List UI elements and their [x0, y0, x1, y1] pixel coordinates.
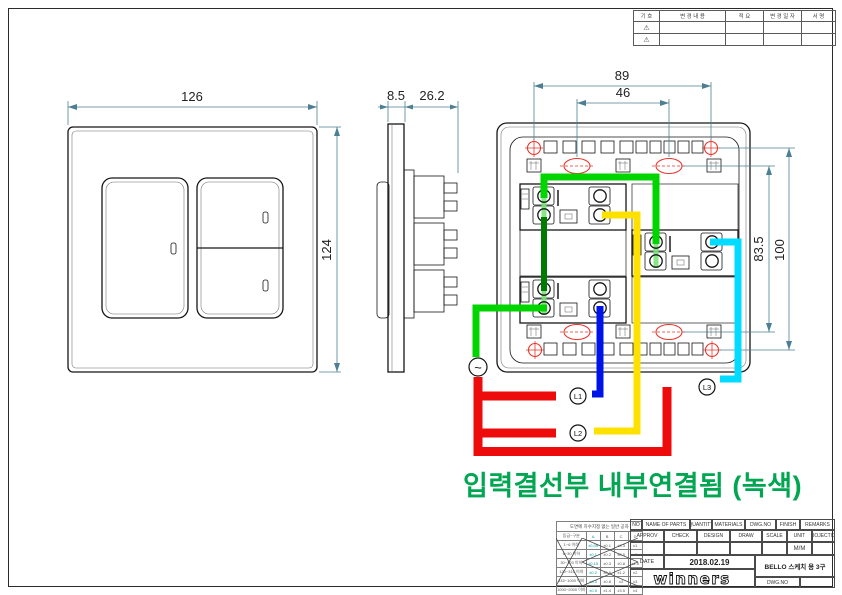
revision-mark-icon: ⚠ [634, 22, 660, 34]
svg-text:~: ~ [474, 360, 482, 375]
switch-module-1 [520, 184, 626, 230]
rocker-left [102, 178, 188, 318]
tb-h1: DWG.NO [745, 519, 776, 530]
tb-cell [762, 542, 787, 555]
front-view: 126 124 [68, 89, 341, 372]
wire-blue-l1 [592, 306, 600, 394]
winners-logo: winners [630, 569, 755, 588]
dwg-no-value [800, 577, 835, 588]
svg-text:100: 100 [772, 239, 787, 261]
rev-cell [660, 34, 726, 46]
rev-cell [802, 34, 836, 46]
svg-text:124: 124 [319, 239, 334, 261]
tb-h2: DRAW [730, 530, 762, 542]
tb-cell [664, 542, 697, 555]
winners-logo-text: winners [653, 570, 730, 588]
side-view: 8.5 26.2 [377, 88, 458, 372]
rocker-indicator-slot [171, 243, 176, 254]
tb-h1: REMARKS [800, 519, 835, 530]
tb-h2: CHECK [664, 530, 697, 542]
wire-cyan-l3 [710, 242, 738, 379]
empty-bay [632, 277, 738, 323]
date-label: DATE [630, 555, 664, 569]
rev-header: 기 호 [634, 11, 660, 22]
date-value: 2018.02.19 [664, 555, 755, 569]
revision-mark-icon: ⚠ [634, 34, 660, 46]
tb-h2: DESIGN [697, 530, 730, 542]
tb-h1: NAME OF PARTS [642, 519, 690, 530]
dim-side: 8.5 26.2 [378, 88, 458, 173]
tb-h2: PROJECTION [812, 530, 835, 542]
empty-bay [632, 184, 738, 230]
svg-text:126: 126 [181, 89, 203, 104]
rev-header: 서 명 [802, 11, 836, 22]
rev-header: 변 경 일 자 [764, 11, 802, 22]
tolerance-crossout [556, 538, 638, 586]
svg-text:89: 89 [615, 68, 629, 83]
svg-text:46: 46 [616, 85, 630, 100]
tb-h1: MATERIALS [712, 519, 745, 530]
tb-h2: APPROV [630, 530, 664, 542]
dwg-no-label: DWG.NO [755, 577, 800, 588]
title-block: NO NAME OF PARTS QUANTITY MATERIALS DWG.… [630, 519, 835, 588]
rev-header: 변 경 내 용 [660, 11, 726, 22]
tb-cell [812, 542, 835, 555]
switch-module-3 [520, 277, 626, 323]
svg-text:83.5: 83.5 [751, 236, 766, 261]
technical-drawing: 126 124 [0, 0, 842, 595]
drawing-sheet: { "colors": { "wire-green": "#00d500", "… [0, 0, 842, 595]
rocker-indicator-slot [263, 280, 268, 291]
product-name: BELLO 스케치 용 3구 [755, 555, 835, 577]
svg-text:L2: L2 [574, 429, 582, 438]
svg-text:26.2: 26.2 [419, 88, 444, 103]
svg-text:8.5: 8.5 [387, 88, 405, 103]
wiring-note: 입력결선부 내부연결됨 (녹색) [463, 464, 802, 503]
rev-cell [726, 22, 764, 34]
rev-cell [660, 22, 726, 34]
rocker-indicator-slot [263, 212, 268, 223]
dim-rear: 89 46 83.5 100 [534, 68, 795, 350]
tb-cell [730, 542, 762, 555]
side-module-blocks [414, 176, 457, 312]
dim-front-width: 126 [68, 89, 317, 125]
tb-h2: SCALE [762, 530, 787, 542]
tb-cell [697, 542, 730, 555]
svg-text:L3: L3 [703, 383, 711, 392]
tb-cell [630, 542, 664, 555]
rev-cell [764, 22, 802, 34]
tb-h1: FINISH [776, 519, 800, 530]
wiring [474, 177, 739, 456]
switch-module-2 [632, 230, 738, 276]
svg-text:L1: L1 [574, 392, 582, 401]
dim-front-height: 124 [319, 127, 341, 372]
rev-cell [764, 34, 802, 46]
rev-header: 적 요 [726, 11, 764, 22]
revision-table: 기 호 변 경 내 용 적 요 변 경 일 자 서 명 ⚠ ⚠ [633, 10, 836, 46]
unit-value: M/M [787, 542, 812, 555]
rev-cell [726, 34, 764, 46]
empty-bay [520, 230, 626, 276]
oval-slots [560, 159, 686, 340]
rev-cell [802, 22, 836, 34]
tb-h1: NO [630, 519, 642, 530]
mount-hooks [527, 159, 721, 338]
tb-h1: QUANTITY [690, 519, 712, 530]
tb-h2: UNIT [787, 530, 812, 542]
